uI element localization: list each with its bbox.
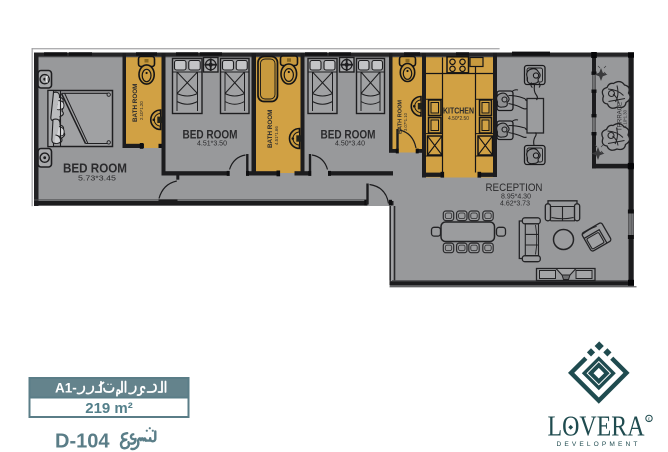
svg-text:4.50*3.40: 4.50*3.40 [335, 141, 365, 148]
svg-text:A1-: A1- [55, 381, 77, 396]
svg-text:4.10*1.30: 4.10*1.30 [623, 109, 628, 128]
svg-text:RECEPTION: RECEPTION [486, 182, 543, 194]
svg-text:LOVERA: LOVERA [548, 412, 646, 443]
svg-text:DEVELOPMENT: DEVELOPMENT [557, 441, 641, 448]
svg-text:219 m²: 219 m² [85, 400, 133, 417]
svg-text:BATH ROOM: BATH ROOM [132, 84, 139, 122]
svg-text:4.51*1.66: 4.51*1.66 [274, 126, 279, 145]
svg-text:8.95*4.30: 8.95*4.30 [501, 194, 531, 201]
svg-text:KITCHEN: KITCHEN [443, 106, 474, 116]
svg-text:BATH ROOM: BATH ROOM [267, 110, 274, 148]
svg-text:BED ROOM: BED ROOM [63, 162, 127, 176]
svg-text:4.50*2.50: 4.50*2.50 [448, 116, 469, 122]
svg-text:5.73*3.45: 5.73*3.45 [78, 176, 116, 183]
svg-text:4.51*3.50: 4.51*3.50 [197, 141, 227, 148]
svg-text:3.07*1.10: 3.07*1.10 [403, 112, 408, 131]
svg-text:D-104: D-104 [55, 431, 110, 452]
svg-text:4.62*3.73: 4.62*3.73 [500, 201, 530, 208]
svg-text:2.10*1.20: 2.10*1.20 [139, 101, 144, 120]
